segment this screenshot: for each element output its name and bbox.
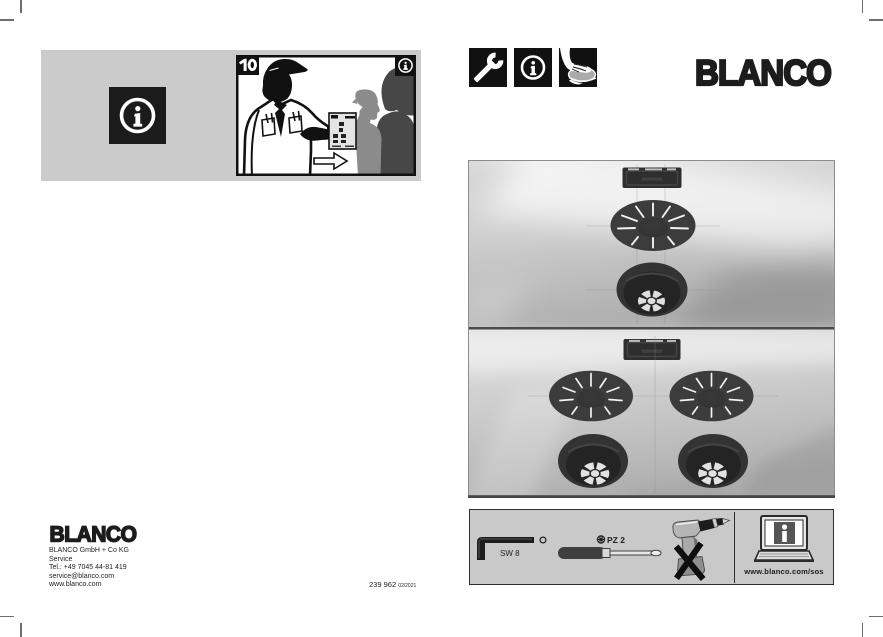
svg-text:PZ 2: PZ 2 [607,535,625,545]
svg-text:BLANCO: BLANCO [695,56,831,87]
svg-text:BLANCO: BLANCO [50,522,137,543]
